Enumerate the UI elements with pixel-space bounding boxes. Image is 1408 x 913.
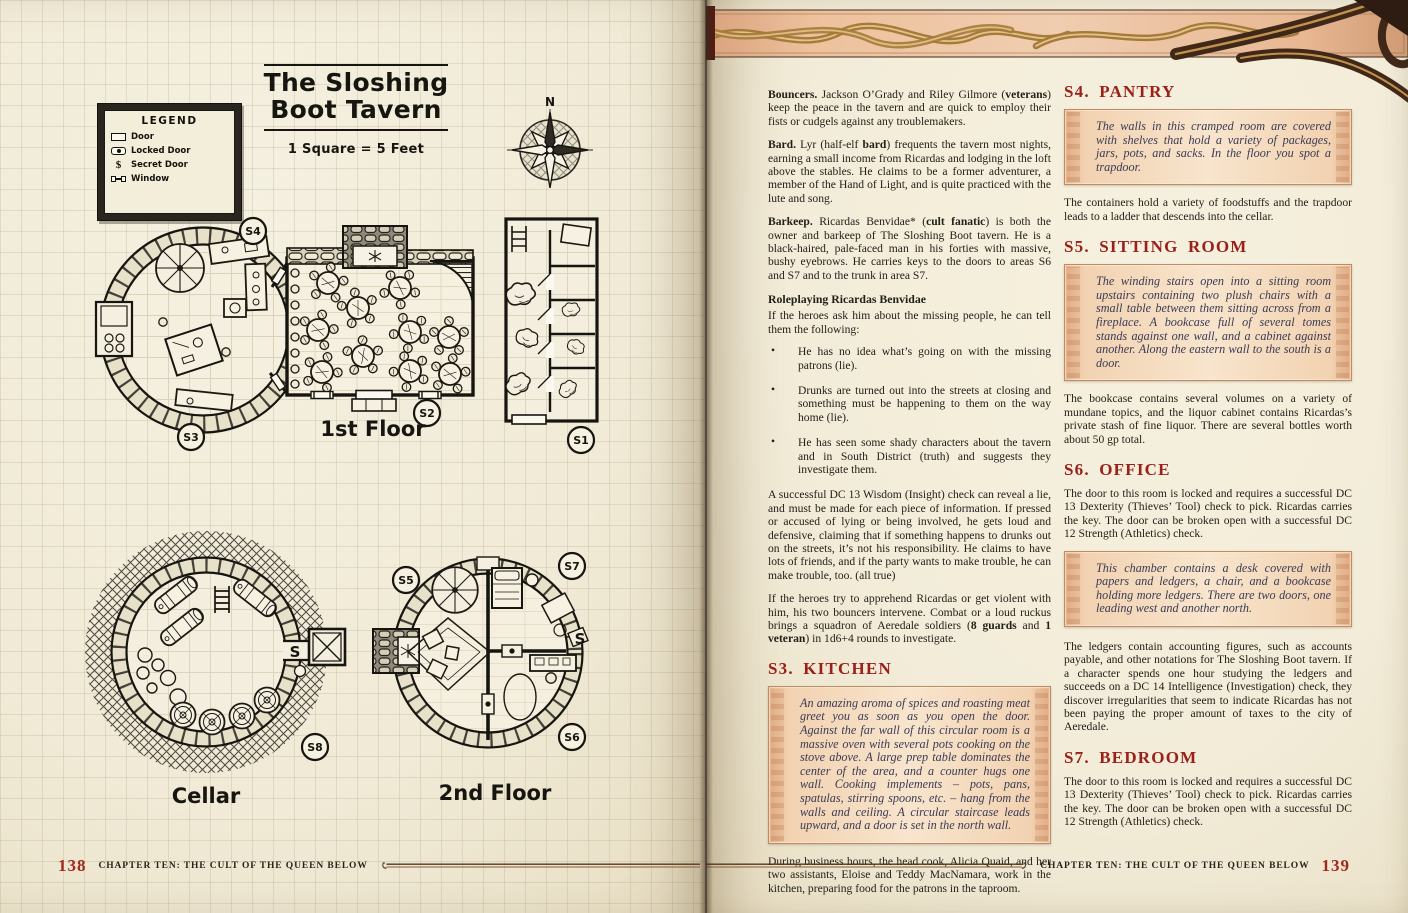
compass-rose: N — [506, 92, 594, 188]
chapter-title: CHAPTER TEN: THE CULT OF THE QUEEN BELOW — [99, 861, 368, 871]
secret-door-glyph-second-floor: S — [575, 630, 586, 648]
readaloud-text: This chamber contains a desk covered wit… — [1096, 562, 1331, 616]
legend-title: LEGEND — [111, 115, 228, 127]
section-heading-s7: S7. BEDROOM — [1064, 748, 1352, 768]
bed — [492, 568, 522, 608]
paragraph-apprehend: If the heroes try to apprehend Ricardas … — [768, 592, 1051, 646]
room-label-s4: S4 — [245, 225, 261, 238]
room-label-s6: S6 — [564, 731, 580, 744]
secret-door-glyph-cellar: S — [290, 643, 301, 661]
page-number: 138 — [58, 856, 87, 876]
left-page-footer: 138 CHAPTER TEN: THE CULT OF THE QUEEN B… — [58, 856, 700, 876]
map-title: The Sloshing Boot Tavern — [262, 66, 450, 129]
desk — [530, 655, 576, 671]
room-label-s7: S7 — [564, 560, 580, 573]
room-label-s1: S1 — [573, 434, 589, 447]
caption-second-floor: 2nd Floor — [439, 781, 552, 805]
chapter-title: CHAPTER TEN: THE CULT OF THE QUEEN BELOW — [1040, 861, 1309, 871]
window-icon — [111, 176, 126, 182]
paragraph-s4-after: The containers hold a variety of foodstu… — [1064, 196, 1352, 223]
section-heading-s3: S3. KITCHEN — [768, 659, 1051, 679]
map-legend: LEGEND Door Locked Door $ Secret Door Wi… — [97, 103, 242, 221]
first-floor-plan: S4 S3 S2 S1 1st Floor — [96, 218, 597, 453]
legend-item-locked-door: Locked Door — [111, 144, 228, 158]
room-label-s3: S3 — [183, 431, 199, 444]
paragraph-s5-after: The bookcase contains several volumes on… — [1064, 392, 1352, 446]
readaloud-box-s6: This chamber contains a desk covered wit… — [1064, 551, 1352, 627]
section-heading-s5: S5. SITTING ROOM — [1064, 237, 1352, 257]
book-spread: LEGEND Door Locked Door $ Secret Door Wi… — [0, 0, 1408, 913]
caption-cellar: Cellar — [172, 784, 241, 808]
footer-rule — [380, 862, 700, 870]
footer-rule — [706, 862, 1028, 870]
room-label-s5: S5 — [398, 574, 414, 587]
map-scale: 1 Square = 5 Feet — [262, 142, 450, 157]
map-title-block: The Sloshing Boot Tavern 1 Square = 5 Fe… — [262, 64, 450, 157]
readaloud-text: The walls in this cramped room are cover… — [1096, 120, 1331, 174]
right-page-footer: CHAPTER TEN: THE CULT OF THE QUEEN BELOW… — [706, 856, 1350, 876]
roleplaying-heading: Roleplaying Ricardas Benvidae — [768, 292, 1051, 307]
map-page: LEGEND Door Locked Door $ Secret Door Wi… — [0, 0, 706, 913]
page-number: 139 — [1322, 856, 1351, 876]
second-floor-plan: S S5 S7 S6 2nd Floor — [373, 553, 588, 805]
secret-door-icon: $ — [111, 159, 126, 171]
trapdoor-shaft — [309, 629, 345, 665]
paragraph-s6-after: The ledgers contain accounting figures, … — [1064, 640, 1352, 734]
bullet-item: He has no idea what’s going on with the … — [768, 345, 1051, 372]
compass-n-label: N — [545, 95, 555, 109]
readaloud-text: The winding stairs open into a sitting r… — [1096, 275, 1331, 370]
bullet-item: Drunks are turned out into the streets a… — [768, 384, 1051, 424]
readaloud-box-s5: The winding stairs open into a sitting r… — [1064, 264, 1352, 381]
bullet-item: He has seen some shady characters about … — [768, 436, 1051, 476]
legend-item-window: Window — [111, 172, 228, 186]
legend-item-door: Door — [111, 130, 228, 144]
text-column-2: S4. PANTRY The walls in this cramped roo… — [1064, 0, 1352, 838]
paragraph-bouncers: Bouncers. Jackson O’Grady and Riley Gilm… — [768, 88, 1051, 128]
readaloud-box-s4: The walls in this cramped room are cover… — [1064, 109, 1352, 185]
door-icon — [111, 133, 126, 141]
readaloud-text: An amazing aroma of spices and roasting … — [800, 697, 1030, 833]
page-gutter — [699, 0, 713, 913]
text-page: Bouncers. Jackson O’Grady and Riley Gilm… — [706, 0, 1408, 913]
paragraph-s6-before: The door to this room is locked and requ… — [1064, 487, 1352, 541]
room-label-s8: S8 — [307, 741, 323, 754]
roleplaying-bullets: He has no idea what’s going on with the … — [768, 345, 1051, 476]
locked-door-icon — [111, 147, 126, 155]
section-heading-s4: S4. PANTRY — [1064, 82, 1352, 102]
paragraph-s7: The door to this room is locked and requ… — [1064, 775, 1352, 829]
caption-first-floor: 1st Floor — [320, 417, 426, 441]
legend-item-secret-door: $ Secret Door — [111, 158, 228, 172]
paragraph-barkeep: Barkeep. Ricardas Benvidae* (cult fanati… — [768, 215, 1051, 282]
section-heading-s6: S6. OFFICE — [1064, 460, 1352, 480]
readaloud-box-s3: An amazing aroma of spices and roasting … — [768, 686, 1051, 844]
paragraph-bard: Bard. Lyr (half-elf bard) frequents the … — [768, 138, 1051, 205]
roleplaying-intro: If the heroes ask him about the missing … — [768, 309, 1051, 336]
text-column-1: Bouncers. Jackson O’Grady and Riley Gilm… — [768, 0, 1051, 905]
cellar-plan: S S8 Cellar — [85, 531, 345, 808]
paragraph-insight: A successful DC 13 Wisdom (Insight) chec… — [768, 488, 1051, 582]
